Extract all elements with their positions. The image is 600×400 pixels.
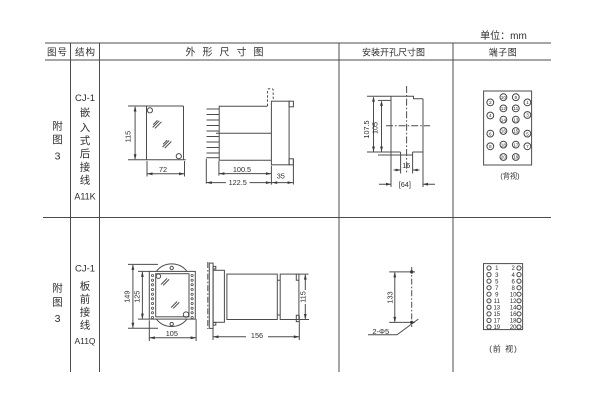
svg-text:3: 3 [55,313,61,325]
svg-text:9: 9 [514,95,517,100]
svg-text:1: 1 [526,100,529,105]
svg-text:105: 105 [166,329,178,338]
svg-text:19: 19 [493,325,500,331]
svg-text:8: 8 [512,286,516,292]
svg-text:6: 6 [512,279,516,285]
svg-text:图: 图 [52,297,63,309]
svg-text:8: 8 [489,144,492,149]
svg-text:[64]: [64] [399,180,411,189]
svg-text:133: 133 [385,291,394,303]
svg-text:18: 18 [510,319,517,325]
svg-text:4: 4 [489,113,492,118]
svg-text:20: 20 [510,325,517,331]
svg-text:149: 149 [122,291,131,303]
svg-text:13: 13 [513,117,519,122]
svg-text:6: 6 [489,131,492,136]
svg-text:19: 19 [513,155,519,160]
svg-text:(前 视): (前 视) [489,343,518,353]
svg-text:后: 后 [80,148,91,160]
svg-text:安装开孔尺寸图: 安装开孔尺寸图 [362,47,425,58]
svg-text:4: 4 [512,273,516,279]
svg-text:105: 105 [370,122,379,134]
svg-text:2: 2 [512,266,516,272]
svg-text:接: 接 [80,161,91,174]
svg-text:14: 14 [510,306,517,312]
svg-text:10: 10 [510,292,517,298]
svg-text:115: 115 [298,291,307,303]
svg-text:5: 5 [495,279,499,285]
svg-text:A11Q: A11Q [74,336,95,346]
svg-text:2-Φ5: 2-Φ5 [372,327,389,336]
svg-text:(背视): (背视) [500,171,519,180]
svg-text:嵌: 嵌 [80,107,91,119]
svg-text:125: 125 [133,291,142,303]
svg-text:13: 13 [493,306,500,312]
svg-text:7: 7 [526,144,529,149]
svg-text:115: 115 [124,131,133,143]
svg-text:12: 12 [501,106,507,111]
svg-text:式: 式 [80,134,91,147]
svg-text:附: 附 [52,282,63,295]
svg-text:CJ-1: CJ-1 [75,93,95,104]
svg-text:3: 3 [55,151,61,163]
svg-text:单位：mm: 单位：mm [480,29,527,42]
svg-text:16: 16 [510,312,517,318]
svg-text:11: 11 [513,106,518,111]
svg-text:17: 17 [493,319,500,325]
svg-text:10: 10 [501,95,507,100]
svg-text:7: 7 [495,286,499,292]
svg-text:CJ-1: CJ-1 [75,264,95,275]
svg-text:板: 板 [80,280,91,293]
svg-text:18: 18 [501,142,507,147]
svg-text:前: 前 [80,293,91,306]
svg-text:17: 17 [513,142,519,147]
svg-text:5: 5 [526,131,529,136]
svg-text:线: 线 [80,174,91,187]
svg-text:14: 14 [501,117,507,122]
svg-text:15: 15 [493,312,500,318]
svg-text:图号: 图号 [47,48,68,59]
svg-text:2: 2 [489,100,492,105]
svg-text:外形尺寸图: 外形尺寸图 [186,46,271,59]
svg-text:72: 72 [159,165,167,174]
svg-text:122.5: 122.5 [229,178,247,187]
svg-text:156: 156 [251,331,263,340]
svg-text:端子图: 端子图 [489,47,518,58]
svg-text:9: 9 [495,292,499,298]
svg-text:35: 35 [277,172,285,181]
svg-text:附: 附 [52,120,63,133]
svg-text:16: 16 [501,129,507,134]
svg-text:12: 12 [510,299,517,305]
svg-text:3: 3 [526,113,529,118]
svg-text:线: 线 [80,319,91,332]
svg-text:100.5: 100.5 [233,165,251,174]
svg-text:16: 16 [402,161,410,170]
svg-text:1: 1 [495,266,499,272]
svg-text:结构: 结构 [75,47,96,59]
svg-text:图: 图 [52,134,63,146]
svg-text:3: 3 [495,273,499,279]
svg-text:入: 入 [80,122,91,134]
svg-text:15: 15 [513,129,519,134]
svg-text:A11K: A11K [74,192,95,202]
svg-text:11: 11 [494,299,501,305]
svg-text:接: 接 [80,306,91,319]
svg-text:20: 20 [501,155,507,160]
